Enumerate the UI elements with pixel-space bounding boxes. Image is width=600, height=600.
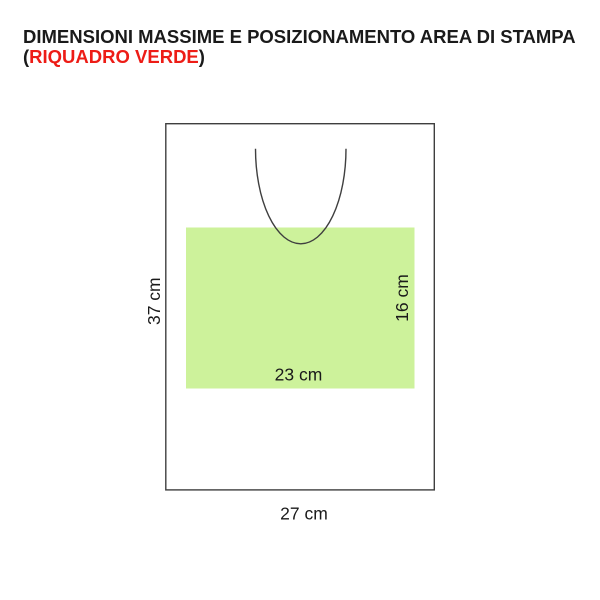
svg-text:16 cm: 16 cm <box>392 274 412 322</box>
svg-text:27 cm: 27 cm <box>280 504 328 524</box>
svg-text:37 cm: 37 cm <box>144 277 164 325</box>
svg-text:23 cm: 23 cm <box>275 364 323 384</box>
